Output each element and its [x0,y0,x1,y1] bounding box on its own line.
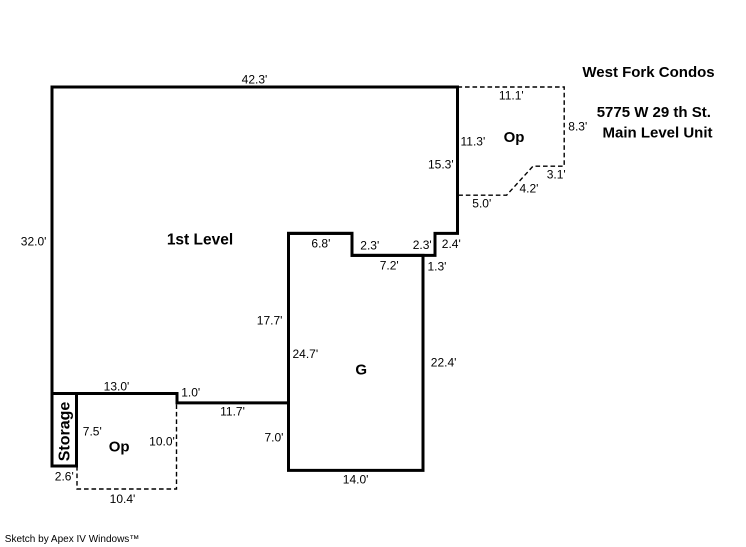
svg-text:2.4': 2.4' [442,237,461,251]
svg-text:1.0': 1.0' [181,386,200,400]
svg-text:Op: Op [109,438,130,455]
svg-text:5775 W 29 th St.: 5775 W 29 th St. [597,104,711,121]
svg-text:42.3': 42.3' [242,72,268,86]
svg-text:11.1': 11.1' [499,89,524,103]
svg-text:7.5': 7.5' [83,424,102,438]
svg-text:32.0': 32.0' [21,234,47,248]
svg-text:7.0': 7.0' [265,431,284,445]
svg-text:3.1': 3.1' [547,168,566,182]
svg-text:14.0': 14.0' [343,473,369,487]
svg-text:17.7': 17.7' [257,314,283,328]
svg-text:Op: Op [504,129,525,146]
svg-text:G: G [355,362,367,379]
svg-text:Storage: Storage [57,402,74,462]
svg-text:24.7': 24.7' [292,347,318,361]
svg-text:11.3': 11.3' [461,135,486,149]
svg-text:2.6': 2.6' [55,470,74,484]
svg-text:8.3': 8.3' [568,119,587,133]
svg-text:West Fork Condos: West Fork Condos [582,64,714,81]
svg-text:2.3': 2.3' [360,238,379,252]
svg-text:2.3': 2.3' [413,238,432,252]
svg-text:1st Level: 1st Level [167,231,233,248]
svg-text:10.0': 10.0' [149,435,175,449]
svg-text:7.2': 7.2' [380,259,399,273]
svg-text:13.0': 13.0' [104,380,130,394]
svg-text:11.7': 11.7' [220,404,245,418]
svg-text:10.4': 10.4' [110,492,136,506]
svg-text:Sketch by Apex IV Windows™: Sketch by Apex IV Windows™ [5,534,140,545]
svg-text:15.3': 15.3' [428,158,454,172]
svg-text:22.4': 22.4' [431,356,457,370]
svg-text:6.8': 6.8' [311,237,330,251]
svg-text:Main Level Unit: Main Level Unit [602,125,712,142]
svg-text:5.0': 5.0' [472,196,491,210]
svg-text:1.3': 1.3' [428,260,447,274]
svg-text:4.2': 4.2' [520,182,539,196]
